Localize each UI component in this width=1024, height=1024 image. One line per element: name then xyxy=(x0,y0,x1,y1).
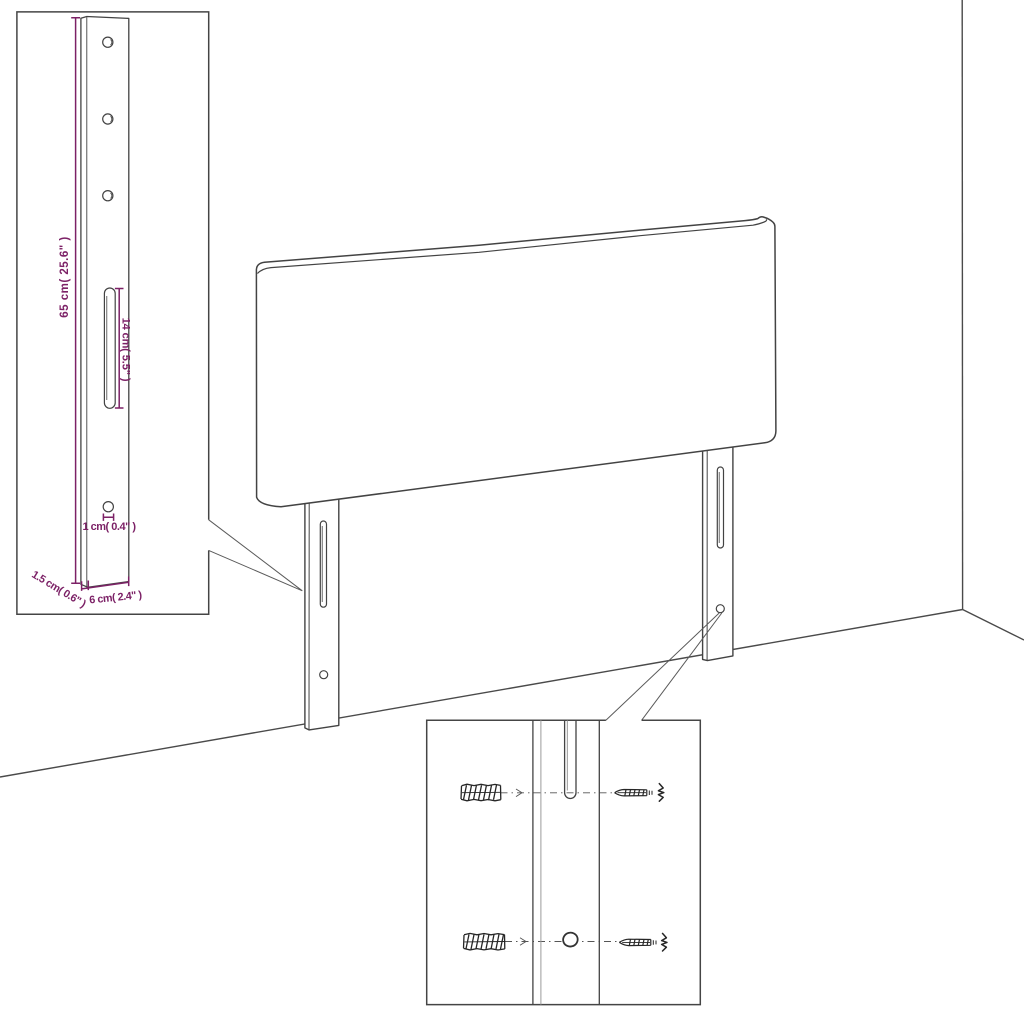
svg-text:1 cm( 0.4" ): 1 cm( 0.4" ) xyxy=(82,521,136,533)
svg-text:14 cm( 5.5" ): 14 cm( 5.5" ) xyxy=(120,318,132,382)
svg-text:65 cm( 25.6" ): 65 cm( 25.6" ) xyxy=(59,236,71,318)
